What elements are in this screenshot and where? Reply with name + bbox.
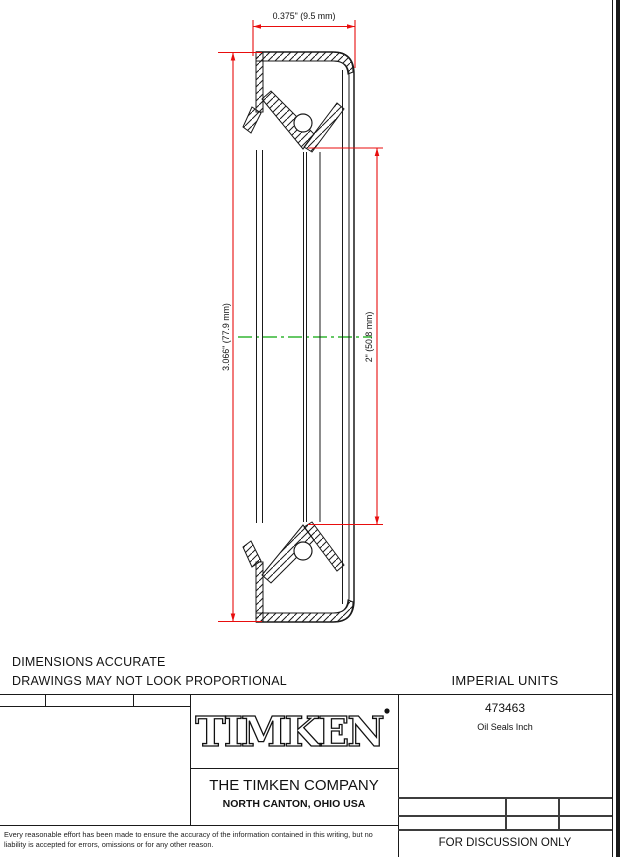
sheet-border-outer <box>616 0 620 857</box>
units-label: IMPERIAL UNITS <box>398 673 612 688</box>
company-location: NORTH CANTON, OHIO USA <box>190 798 398 810</box>
dimension-label-width: 0.375" (9.5 mm) <box>273 11 336 21</box>
titleblock-cell-divider <box>45 694 46 706</box>
garter-spring-bottom <box>294 542 312 560</box>
titleblock-cell-divider <box>133 694 134 706</box>
disclaimer-text: Every reasonable effort has been made to… <box>4 830 394 849</box>
garter-spring-top <box>294 114 312 132</box>
sheet-border-inner <box>612 0 613 857</box>
disclaimer-top-rule <box>0 825 398 826</box>
oil-seal-cross-section-drawing: 0.375" (9.5 mm) 3.066" (77.9 mm) 2" (50.… <box>0 0 620 650</box>
registered-trademark-icon <box>384 708 389 713</box>
revision-table-divider <box>505 797 507 830</box>
part-type: Oil Seals Inch <box>398 722 612 732</box>
timken-logo-text: TIMKEN <box>195 708 383 756</box>
titleblock-row-rule <box>0 706 190 707</box>
revision-table-divider <box>558 797 560 830</box>
timken-logo: TIMKEN <box>190 694 398 768</box>
drawing-sheet: 0.375" (9.5 mm) 3.066" (77.9 mm) 2" (50.… <box>0 0 620 857</box>
note-dimensions-accurate: DIMENSIONS ACCURATE <box>12 655 166 669</box>
dimension-label-inner-diameter: 2" (50.8 mm) <box>364 312 374 363</box>
status-for-discussion-only: FOR DISCUSSION ONLY <box>398 837 612 849</box>
dimension-label-outer-diameter: 3.066" (77.9 mm) <box>221 303 231 371</box>
titleblock-right-divider <box>398 694 399 857</box>
part-number: 473463 <box>398 701 612 715</box>
company-name: THE TIMKEN COMPANY <box>190 777 398 794</box>
note-not-proportional: DRAWINGS MAY NOT LOOK PROPORTIONAL <box>12 674 287 688</box>
logo-box-bottom-rule <box>190 768 398 769</box>
